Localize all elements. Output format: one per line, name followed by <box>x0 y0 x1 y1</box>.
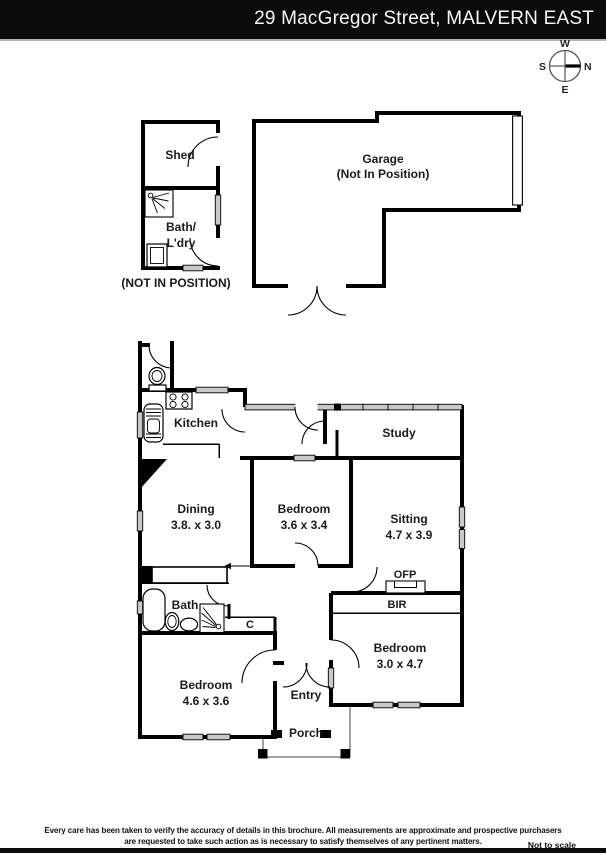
compass-label-north: N <box>584 61 592 73</box>
outbuilding-shed-bath: Shed Bath/ L'dry (NOT IN POSITION) <box>121 122 230 290</box>
bedroom-left-door-arc <box>242 650 275 683</box>
bathtub-icon <box>143 589 165 631</box>
sunroom-window-band <box>245 403 462 412</box>
footer-disclaimer: Every care has been taken to verify the … <box>0 826 606 847</box>
bathroom-door-arc <box>207 585 228 606</box>
sitting-window-1 <box>459 507 464 527</box>
stove-icon <box>166 392 192 409</box>
label-ofp: OFP <box>394 569 417 581</box>
bedroom-left-window-2 <box>207 734 230 740</box>
room-label-sitting: Sitting <box>390 512 427 526</box>
room-dims-sitting: 4.7 x 3.9 <box>386 528 433 542</box>
garage: Garage (Not In Position) <box>254 113 522 315</box>
room-label-bedroom-mid: Bedroom <box>278 502 331 516</box>
dining-chimney <box>140 459 167 489</box>
toilet-icon-wc <box>149 368 166 392</box>
room-label-entry: Entry <box>291 688 322 702</box>
sitting-window-2 <box>459 530 464 549</box>
disclaimer-line-2: are requested to take such action as is … <box>0 837 606 848</box>
room-label-bath-ldry-2: L'dry <box>167 236 196 250</box>
room-label-garage: Garage <box>362 152 404 166</box>
bath-bottom-window <box>183 265 203 271</box>
disclaimer-line-1: Every care has been taken to verify the … <box>0 826 606 837</box>
entry-door-arc-right <box>306 663 330 687</box>
entry-door-arc-left <box>283 663 307 687</box>
hall-door-arc <box>302 421 325 444</box>
glass-door-opening <box>296 403 318 412</box>
main-house: Kitchen Dining 3.8. x 3.0 Bedroom 3.6 x … <box>137 341 464 759</box>
bedroom-right-window-1 <box>373 702 393 708</box>
garage-door-arc-left <box>288 286 317 315</box>
compass-label-west: W <box>560 38 570 50</box>
room-dims-bedroom-right: 3.0 x 4.7 <box>377 657 424 671</box>
room-label-bedroom-right: Bedroom <box>374 641 427 655</box>
porch-post-right <box>341 749 351 759</box>
bedroom-right-window-2 <box>398 702 420 708</box>
sitting-door-arc <box>352 567 377 592</box>
garage-note: (Not In Position) <box>337 167 430 181</box>
footer-bar <box>0 848 606 853</box>
shed-door-opening <box>215 133 221 166</box>
window-band-post <box>334 404 341 411</box>
sink-bench-icon <box>144 404 163 442</box>
compass-label-south: S <box>539 61 546 73</box>
floorplan-drawing: W S N E Shed Bath/ <box>0 0 606 853</box>
internal-window <box>294 455 315 461</box>
bath-window <box>215 195 220 225</box>
kitchen-door-arc <box>222 409 245 432</box>
room-dims-bedroom-left: 4.6 x 3.6 <box>183 694 230 708</box>
outbuilding-note: (NOT IN POSITION) <box>121 276 230 290</box>
porch-post-left <box>258 749 268 759</box>
bath-side-window <box>137 601 142 614</box>
hall-chimney-block <box>138 566 152 583</box>
room-label-porch: Porch <box>289 726 323 740</box>
shower-icon <box>145 190 173 217</box>
opening-arrow-icon <box>225 563 252 569</box>
garage-walls <box>254 113 519 286</box>
compass-rose: W S N E <box>539 38 592 96</box>
bath-door-opening <box>215 238 221 266</box>
room-label-shed: Shed <box>165 148 194 162</box>
compass-label-east: E <box>561 84 568 96</box>
entry-wall-post-left <box>271 730 282 738</box>
room-label-kitchen: Kitchen <box>174 416 218 430</box>
entry-side-window <box>328 668 333 688</box>
room-label-dining: Dining <box>177 502 214 516</box>
kitchen-window <box>196 387 228 393</box>
bedroom-left-window-1 <box>183 734 203 740</box>
dining-window <box>137 511 142 531</box>
bedroom-mid-door-arc <box>295 543 318 566</box>
bedroom-right-door-arc <box>331 640 359 668</box>
room-dims-bedroom-mid: 3.6 x 3.4 <box>281 518 328 532</box>
label-bir: BIR <box>388 599 407 611</box>
label-closet: C <box>246 619 254 631</box>
room-label-study: Study <box>382 426 416 440</box>
shower-icon-bath <box>200 604 224 633</box>
room-label-bath-ldry-1: Bath/ <box>166 220 197 234</box>
garage-door-panel <box>513 116 523 205</box>
basin-icon <box>180 618 197 631</box>
hall-cupboard <box>152 567 227 583</box>
room-label-bath: Bath <box>172 598 199 612</box>
room-label-bedroom-left: Bedroom <box>180 678 233 692</box>
floorplan-page: 29 MacGregor Street, MALVERN EAST W S N … <box>0 0 606 853</box>
wc-door-arc <box>149 345 172 368</box>
kitchen-side-window <box>137 412 142 438</box>
fireplace-ofp-icon <box>386 581 425 593</box>
room-dims-dining: 3.8. x 3.0 <box>171 518 221 532</box>
toilet-icon-bath <box>165 613 179 631</box>
garage-door-arc-right <box>317 286 346 315</box>
laundry-trough-icon <box>147 244 167 267</box>
